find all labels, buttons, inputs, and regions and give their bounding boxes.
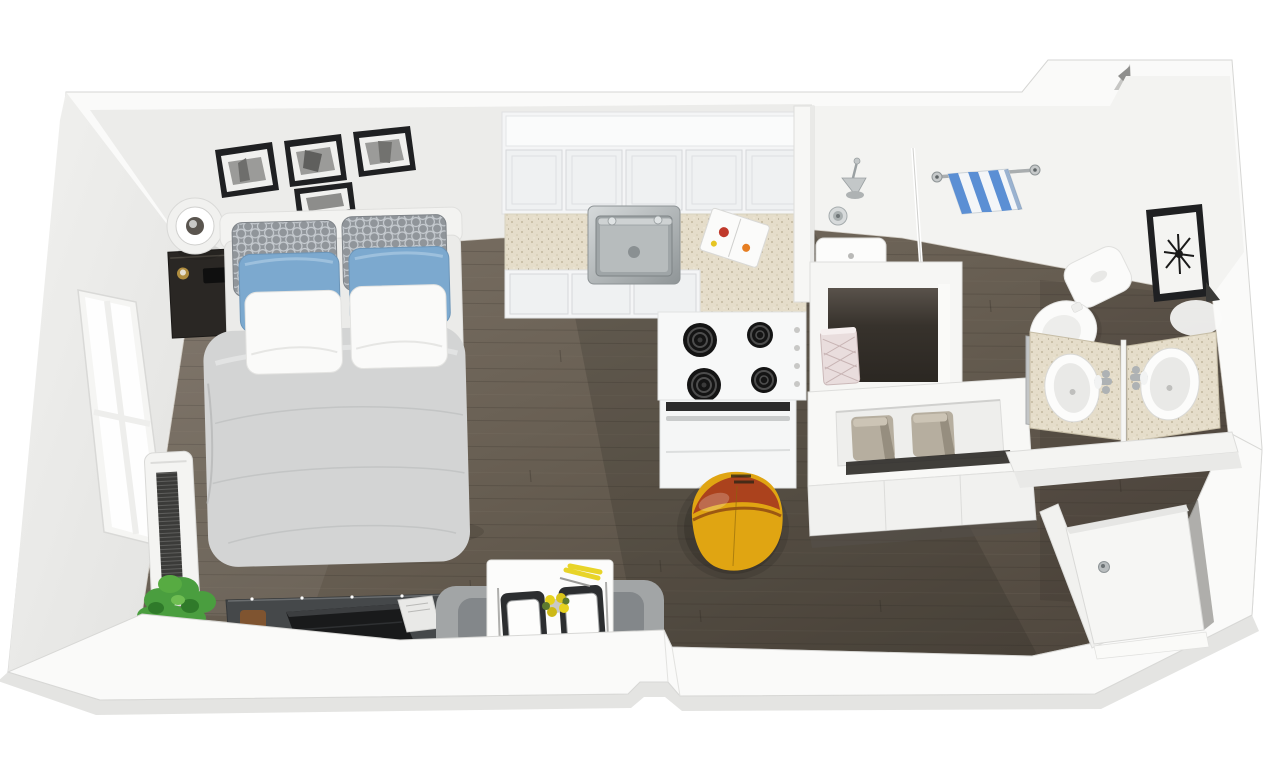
pillow-white-left <box>245 290 343 374</box>
bed <box>200 207 485 568</box>
kitchen-upper-cabinets <box>502 112 806 214</box>
pillow-white-right <box>350 284 448 368</box>
burner-back-left <box>683 323 717 357</box>
vanity-mirror-divider <box>1121 340 1126 444</box>
floor-plan-svg <box>0 0 1280 765</box>
gallery-frame-3 <box>353 126 416 177</box>
burner-front-right <box>751 367 777 393</box>
gallery-frame-2 <box>284 134 347 187</box>
kitchen-sink <box>588 206 680 284</box>
ceiling-light <box>829 207 847 225</box>
bar-stool-2 <box>911 411 955 457</box>
range-cooktop <box>658 312 806 402</box>
burner-front-left <box>687 368 721 402</box>
burner-back-right <box>747 322 773 348</box>
shower-drain <box>848 253 854 259</box>
bar-stool-1 <box>851 415 895 461</box>
closet <box>810 262 962 398</box>
breakfast-bar <box>808 378 1038 548</box>
sink-drain <box>628 246 640 258</box>
gallery-frame-1 <box>215 142 279 198</box>
storage-basket <box>820 327 860 385</box>
floor-plan-stage <box>0 0 1280 765</box>
